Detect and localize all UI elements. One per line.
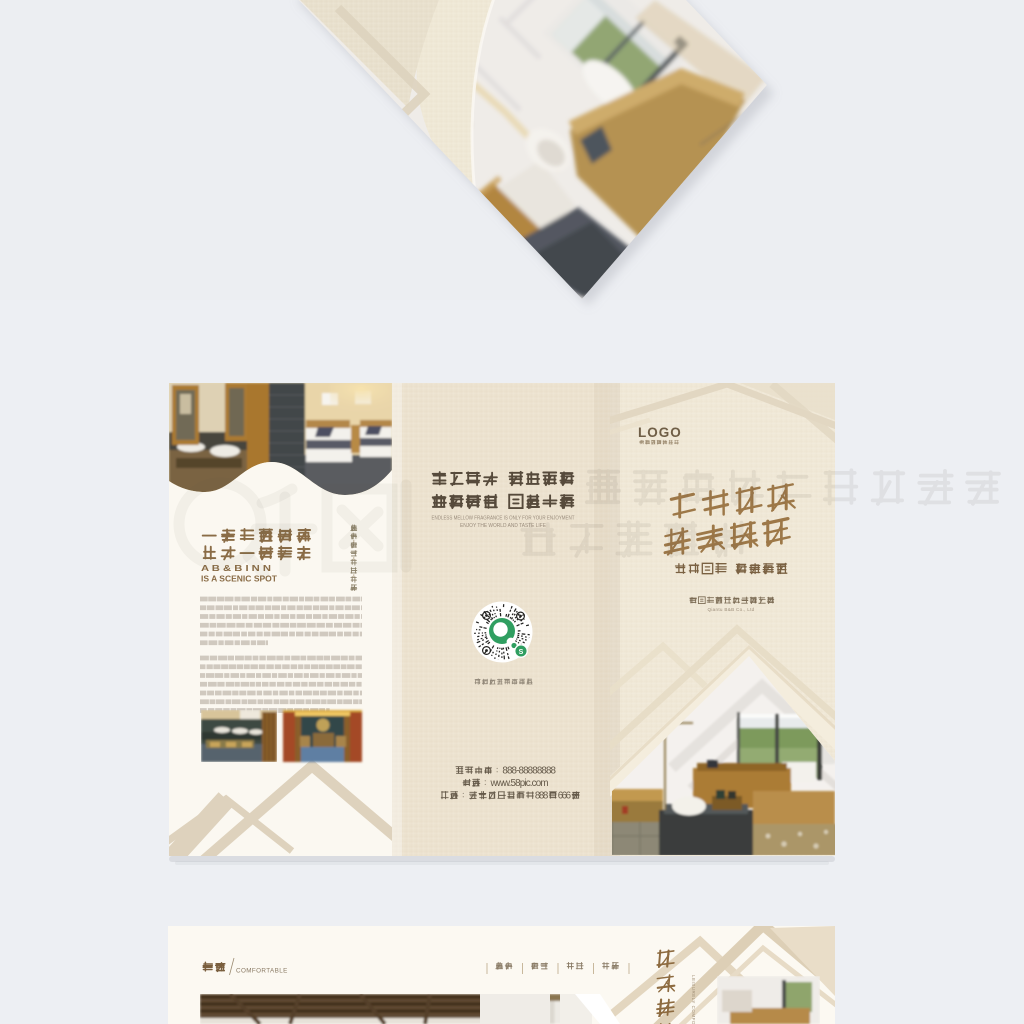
svg-text:LOGO: LOGO (638, 425, 682, 440)
svg-text:www.58pic.com: www.58pic.com (490, 778, 549, 789)
svg-text:Qiantu B&B Co., Ltd: Qiantu B&B Co., Ltd (707, 607, 754, 612)
svg-text:888-88888888: 888-88888888 (502, 766, 556, 777)
svg-text:666: 666 (558, 791, 572, 802)
svg-text:COMFORTABLE: COMFORTABLE (236, 968, 288, 975)
svg-text:ENDLESS MELLOW FRAGRANCE IS ON: ENDLESS MELLOW FRAGRANCE IS ONLY FOR YOU… (432, 516, 575, 522)
svg-text:LEISURELY COMFORT: LEISURELY COMFORT (691, 975, 696, 1024)
svg-text:S: S (519, 649, 524, 656)
svg-text:888: 888 (535, 791, 549, 802)
